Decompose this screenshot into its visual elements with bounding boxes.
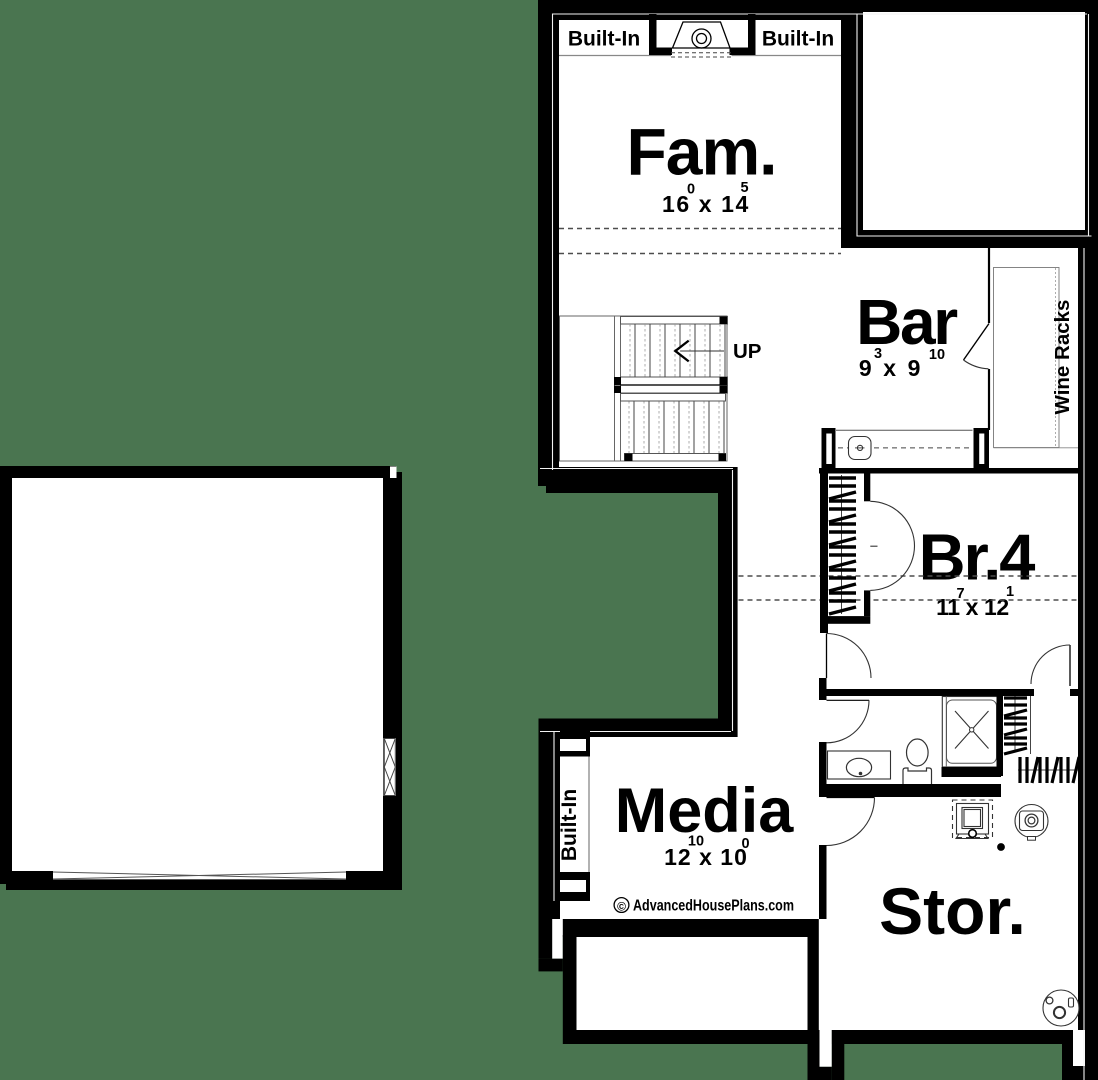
svg-text:Stor.: Stor. bbox=[879, 874, 1026, 948]
svg-text:1: 1 bbox=[1006, 584, 1014, 600]
svg-text:©: © bbox=[617, 900, 626, 914]
svg-text:UP: UP bbox=[733, 340, 761, 363]
svg-text:10: 10 bbox=[929, 347, 945, 363]
svg-text:AdvancedHousePlans.com: AdvancedHousePlans.com bbox=[633, 898, 794, 915]
svg-text:16 x 14: 16 x 14 bbox=[662, 191, 750, 217]
svg-text:Built-In: Built-In bbox=[762, 28, 834, 51]
svg-text:0: 0 bbox=[741, 836, 749, 852]
svg-text:0: 0 bbox=[687, 182, 695, 198]
svg-text:3: 3 bbox=[874, 346, 882, 362]
svg-text:Fam.: Fam. bbox=[626, 115, 776, 189]
svg-text:11 x 12: 11 x 12 bbox=[936, 594, 1009, 620]
svg-text:Built-In: Built-In bbox=[568, 28, 640, 51]
svg-text:9 x 9: 9 x 9 bbox=[859, 355, 923, 381]
svg-text:10: 10 bbox=[688, 834, 704, 850]
svg-text:Media: Media bbox=[615, 776, 795, 846]
svg-text:12 x 10: 12 x 10 bbox=[664, 844, 748, 870]
svg-text:Built-In: Built-In bbox=[558, 789, 581, 861]
svg-text:Wine Racks: Wine Racks bbox=[1051, 300, 1074, 415]
svg-text:5: 5 bbox=[740, 180, 748, 196]
svg-text:Br.4: Br.4 bbox=[919, 521, 1036, 594]
